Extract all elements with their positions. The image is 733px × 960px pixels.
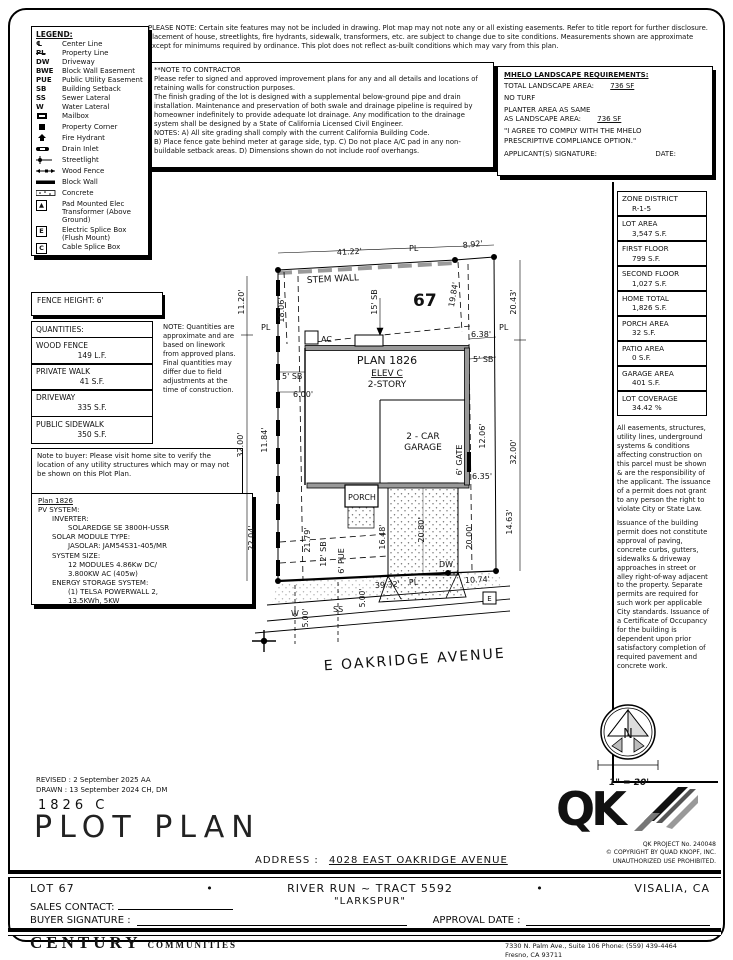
qk-logo-stripes <box>634 787 694 827</box>
divider-rule-top <box>8 870 721 878</box>
community-name: "LARKSPUR" <box>230 896 510 907</box>
tract-label: RIVER RUN ~ TRACT 5592 <box>230 882 510 895</box>
porch-label: PORCH <box>348 493 376 502</box>
pv-line: ENERGY STORAGE SYSTEM: <box>38 579 246 588</box>
garage-label-1: 2 - CAR <box>406 432 439 442</box>
driveway-symbol: DW <box>36 58 62 66</box>
dim-1648: 16.48' <box>378 524 387 549</box>
cable-splice-box-icon: C <box>36 243 47 254</box>
dim-1463: 14.63' <box>505 509 514 534</box>
dim-500b: 5.00' <box>301 609 310 628</box>
pl-bottom-label: PL <box>409 577 419 587</box>
brand-century: CENTURY <box>30 933 141 953</box>
sheet-title: PLOT PLAN <box>34 810 261 845</box>
mhelo-total-value: 736 SF <box>596 82 648 90</box>
pv-system-box: Plan 1826 PV SYSTEM: INVERTER: SOLAREDGE… <box>31 493 253 605</box>
mhelo-planter-2: AS LANDSCAPE AREA: 736 SF <box>504 115 706 124</box>
mhelo-sig-label: APPLICANT(S) SIGNATURE: <box>504 150 597 159</box>
porch-walk <box>348 507 374 528</box>
garage-label-2: GARAGE <box>404 443 442 453</box>
mhelo-total-label: TOTAL LANDSCAPE AREA: <box>504 82 594 90</box>
dim-638: 6.38' <box>471 330 491 339</box>
plan-elev: ELEV C <box>371 369 403 379</box>
pv-line: 13.5KWh, 5KW <box>38 597 246 606</box>
mhelo-signature-line[interactable] <box>504 167 619 178</box>
water-lateral-label: W <box>291 609 299 618</box>
plan-story: 2-STORY <box>368 380 407 390</box>
dim-gate6: 6' GATE <box>455 445 464 476</box>
dim-635: 6.35' <box>472 472 492 481</box>
lot-number: 67 <box>413 291 437 311</box>
quantities-row: WOOD FENCE149 L.F. <box>31 337 153 365</box>
compass-n: N <box>623 727 633 742</box>
qk-unauthorized: UNAUTHORIZED USE PROHIBITED. <box>556 858 716 866</box>
pv-line: JASOLAR: JAM54S31-405/MR <box>38 542 246 551</box>
please-note: PLEASE NOTE: Certain site features may n… <box>148 24 714 51</box>
qk-copyright: © COPYRIGHT BY QUAD KNOPF, INC. <box>556 849 716 857</box>
bullet-2: • <box>510 882 570 895</box>
pue-symbol: PUE <box>36 76 62 84</box>
quantities-row: PUBLIC SIDEWALK350 S.F. <box>31 416 153 444</box>
dim-3200-right: 32.00' <box>509 439 518 464</box>
bwe-symbol: BWE <box>36 67 62 75</box>
pv-line: INVERTER: <box>38 515 246 524</box>
mhelo-sig-row: APPLICANT(S) SIGNATURE: DATE: <box>504 150 706 159</box>
lot-row: LOT 67 • RIVER RUN ~ TRACT 5592 • VISALI… <box>30 882 710 895</box>
qk-logo-block: QK QK PROJECT No. 240048 © COPYRIGHT BY … <box>556 783 716 865</box>
footer-address-1: 7330 N. Palm Ave., Suite 106 Phone: (559… <box>505 942 720 951</box>
mhelo-planter-1: PLANTER AREA AS SAME <box>504 106 706 115</box>
buyer-signature-label: BUYER SIGNATURE : <box>30 915 131 926</box>
dim-1206: 12.06' <box>478 423 487 448</box>
sales-contact-row: SALES CONTACT: <box>30 899 233 913</box>
footer: CENTURY COMMUNITIES 7330 N. Palm Ave., S… <box>30 933 720 960</box>
w-symbol: W <box>36 103 62 111</box>
mhelo-date-line[interactable] <box>635 167 693 178</box>
fence-height-box: FENCE HEIGHT: 6' <box>31 292 163 316</box>
mhelo-date-label: DATE: <box>655 150 676 159</box>
address-row: ADDRESS : 4028 EAST OAKRIDGE AVENUE <box>255 855 508 866</box>
dim-1120: 11.20' <box>237 289 246 314</box>
dim-sb5-right: 5' SB <box>473 355 493 364</box>
dim-500a: 5.00' <box>358 589 367 608</box>
dim-2043: 20.43' <box>509 289 518 314</box>
zone-row: PATIO AREA0 S.F. <box>617 340 707 366</box>
plot-drawing: E 41.22' PL 8.92' STEM WALL 67 11.20' 18… <box>225 240 610 700</box>
pl-left-label: PL <box>261 323 271 332</box>
dim-892: 8.92' <box>462 240 483 250</box>
e-box-label: E <box>487 595 491 603</box>
zone-row: PORCH AREA32 S.F. <box>617 315 707 341</box>
mhelo-total: TOTAL LANDSCAPE AREA: 736 SF <box>504 82 706 91</box>
quantities-row: PRIVATE WALK41 S.F. <box>31 363 153 391</box>
electric-splice-box-icon: E <box>36 226 47 237</box>
north-compass: N <box>594 702 664 778</box>
dim-2000: 20.00' <box>465 524 474 549</box>
dim-2204: 22.04' <box>247 525 256 550</box>
zone-row: FIRST FLOOR799 S.F. <box>617 240 707 266</box>
zone-table: ZONE DISTRICTR-1-5 LOT AREA3,547 S.F. FI… <box>617 192 707 416</box>
ac-pad <box>305 331 318 344</box>
ss-symbol: SS <box>36 94 62 102</box>
quantities-title: QUANTITIES: <box>31 321 153 339</box>
drawn-line: DRAWN : 13 September 2024 CH, DM <box>36 786 167 795</box>
approval-date-label: APPROVAL DATE : <box>433 915 521 926</box>
signature-row: BUYER SIGNATURE : APPROVAL DATE : <box>30 915 710 926</box>
bullet-1: • <box>190 882 230 895</box>
mailbox-icon <box>36 112 62 122</box>
contractor-note-p1: Please refer to signed and approved impr… <box>154 75 488 93</box>
streetlight-icon <box>36 156 62 166</box>
concrete-icon <box>36 189 62 199</box>
pv-line: (1) TELSA POWERWALL 2, <box>38 588 246 597</box>
brand-communities: COMMUNITIES <box>147 940 237 950</box>
sales-contact-line[interactable] <box>118 899 233 910</box>
zone-row: LOT AREA3,547 S.F. <box>617 215 707 241</box>
sales-contact-label: SALES CONTACT: <box>30 902 114 913</box>
mhelo-title: MHELO LANDSCAPE REQUIREMENTS: <box>504 71 706 80</box>
dim-3932: 39.32' <box>375 580 401 590</box>
approval-date-line[interactable] <box>526 915 710 926</box>
pv-line: SOLAR MODULE TYPE: <box>38 533 246 542</box>
qk-logo: QK <box>556 782 623 836</box>
bay-window <box>355 335 383 346</box>
contractor-note-p3: NOTES: A) All site grading shall comply … <box>154 129 488 138</box>
dim-sb15: 15' SB <box>370 289 379 315</box>
legend-title: LEGEND: <box>36 30 144 39</box>
dim-1184: 11.84' <box>260 427 269 452</box>
footer-address: 7330 N. Palm Ave., Suite 106 Phone: (559… <box>505 942 720 960</box>
buyer-signature-line[interactable] <box>137 915 407 926</box>
zone-row: SECOND FLOOR1,027 S.F. <box>617 265 707 291</box>
ac-label: AC <box>321 335 332 344</box>
dim-1074: 10.74' <box>465 575 491 585</box>
dim-sb12: 12' SB <box>319 541 328 567</box>
property-corner-icon <box>36 123 62 133</box>
street-name: E OAKRIDGE AVENUE <box>323 646 506 675</box>
address-label: ADDRESS : <box>255 855 319 866</box>
legend-box: LEGEND: ℄Center Line PLProperty Line DWD… <box>31 26 149 256</box>
revised-line: REVISED : 2 September 2025 AA <box>36 776 151 785</box>
mhelo-agree-2: PRESCRIPTIVE COMPLIANCE OPTION." <box>504 137 706 146</box>
compass-block: N 1" = 20' <box>594 702 664 778</box>
dim-pue6: 6' PUE <box>337 548 346 574</box>
centerline-symbol: ℄ <box>36 40 62 48</box>
pl-top-label: PL <box>409 244 419 253</box>
zone-row: ZONE DISTRICTR-1-5 <box>617 191 707 217</box>
quantities-row: DRIVEWAY335 S.F. <box>31 389 153 417</box>
disclaimer-p2: Issuance of the building permit does not… <box>617 519 711 671</box>
contractor-note-p4: B) Place fence gate behind meter at gara… <box>154 138 488 156</box>
wood-fence-icon <box>36 167 62 177</box>
stem-wall-label: STEM WALL <box>307 273 360 286</box>
dim-2080: 20.80' <box>417 517 426 542</box>
sewer-lateral-label: SS <box>333 605 343 614</box>
dim-1806: 18.06' <box>277 297 286 322</box>
mhelo-sig-lines <box>504 167 706 181</box>
mhelo-planter-value: 736 SF <box>583 115 635 123</box>
dim-600: 6.00' <box>293 390 313 399</box>
contractor-note-title: **NOTE TO CONTRACTOR <box>154 66 488 75</box>
contractor-note-p2: The finish grading of the lot is designe… <box>154 93 488 129</box>
pv-title: Plan 1826 <box>38 497 246 506</box>
property-line-symbol: PL <box>36 49 62 57</box>
contractor-note-box: **NOTE TO CONTRACTOR Please refer to sig… <box>148 62 494 168</box>
dim-3200-left: 32.00' <box>236 432 245 457</box>
zone-row: HOME TOTAL1,826 S.F. <box>617 290 707 316</box>
pv-line: SOLAREDGE SE 3800H-USSR <box>38 524 246 533</box>
zone-row: LOT COVERAGE34.42 % <box>617 390 707 416</box>
block-wall-icon <box>36 178 62 188</box>
quantities-table: QUANTITIES: WOOD FENCE149 L.F. PRIVATE W… <box>31 322 153 444</box>
right-disclaimer: All easements, structures, utility lines… <box>617 424 711 671</box>
mhelo-box: MHELO LANDSCAPE REQUIREMENTS: TOTAL LAND… <box>497 66 713 176</box>
address-value: 4028 EAST OAKRIDGE AVENUE <box>329 855 508 866</box>
pv-line: 3.800KW AC (405w) <box>38 570 246 579</box>
pl-right-label: PL <box>499 323 509 332</box>
electric-splice-box: E <box>483 592 496 604</box>
fire-hydrant-icon <box>36 134 62 144</box>
dim-sb5-left: 5' SB <box>282 372 302 381</box>
footer-address-2: Fresno, CA 93711 <box>505 951 720 960</box>
dim-4122: 41.22' <box>337 247 363 257</box>
plan-title: PLAN 1826 <box>357 354 417 367</box>
plot-plan-page: { "notes": { "please_note": "PLEASE NOTE… <box>0 0 733 948</box>
mhelo-no-turf: NO TURF <box>504 94 706 103</box>
sb-symbol: SB <box>36 85 62 93</box>
dim-1984: 19.84' <box>447 281 460 307</box>
right-column-divider <box>612 182 614 782</box>
lot-label: LOT 67 <box>30 882 190 895</box>
pv-line: 12 MODULES 4.86Kw DC/ <box>38 561 246 570</box>
mhelo-agree-1: "I AGREE TO COMPLY WITH THE MHELO <box>504 127 706 136</box>
transformer-icon: ▲ <box>36 200 47 211</box>
zone-row: GARAGE AREA401 S.F. <box>617 365 707 391</box>
disclaimer-p1: All easements, structures, utility lines… <box>617 424 711 514</box>
pv-line: SYSTEM SIZE: <box>38 552 246 561</box>
city-label: VISALIA, CA <box>570 882 710 895</box>
mhelo-planter-label: AS LANDSCAPE AREA: <box>504 115 581 123</box>
buyer-note-box: Note to buyer: Please visit home site to… <box>31 448 243 494</box>
dim-2179: 21.79' <box>303 527 312 552</box>
drain-inlet-icon <box>36 145 62 155</box>
qk-project-no: QK PROJECT No. 240048 <box>556 841 716 849</box>
dw-label: DW <box>439 560 453 569</box>
pv-line: PV SYSTEM: <box>38 506 246 515</box>
